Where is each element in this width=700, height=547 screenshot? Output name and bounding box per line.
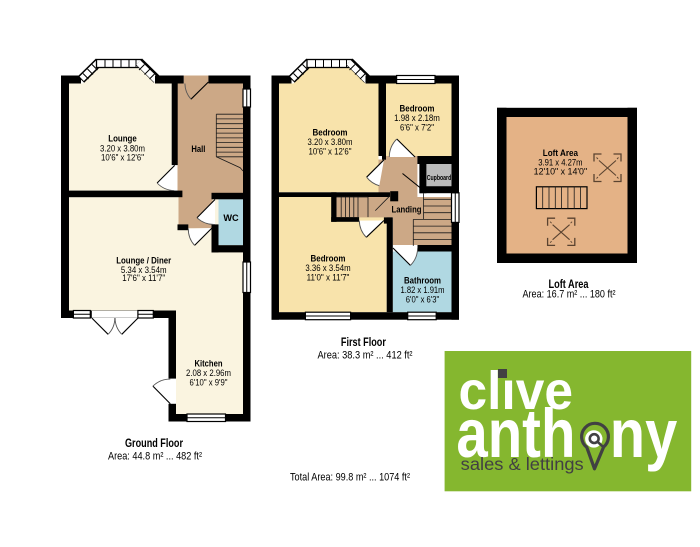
svg-text:6'6" x 7'2": 6'6" x 7'2" — [400, 122, 434, 132]
svg-text:Total Area: 99.8 m² ... 1074 f: Total Area: 99.8 m² ... 1074 ft² — [290, 472, 410, 484]
svg-text:First Floor: First Floor — [341, 335, 386, 349]
svg-text:6'0" x 6'3": 6'0" x 6'3" — [406, 295, 440, 305]
svg-text:sales & lettings: sales & lettings — [461, 454, 584, 474]
svg-text:2.08 x 2.96m: 2.08 x 2.96m — [186, 368, 231, 378]
svg-text:3.20 x 3.80m: 3.20 x 3.80m — [308, 137, 353, 147]
svg-text:11'0" x 11'7": 11'0" x 11'7" — [307, 273, 350, 283]
svg-text:1.82 x 1.91m: 1.82 x 1.91m — [401, 285, 445, 295]
svg-text:Area: 38.3 m² ... 412 ft²: Area: 38.3 m² ... 412 ft² — [318, 350, 413, 362]
svg-text:1.98 x 2.18m: 1.98 x 2.18m — [394, 113, 440, 123]
svg-text:Ground Floor: Ground Floor — [125, 436, 183, 450]
svg-text:3.36 x 3.54m: 3.36 x 3.54m — [305, 263, 350, 273]
svg-text:Cupboard: Cupboard — [427, 175, 452, 182]
svg-text:Area: 16.7 m² ... 180 ft²: Area: 16.7 m² ... 180 ft² — [523, 289, 616, 301]
svg-text:ny: ny — [610, 395, 678, 472]
svg-text:Area: 44.8 m² ... 482 ft²: Area: 44.8 m² ... 482 ft² — [108, 451, 202, 463]
svg-text:10'6" x 12'6": 10'6" x 12'6" — [101, 153, 144, 163]
svg-text:6'10" x 9'9": 6'10" x 9'9" — [190, 378, 228, 388]
svg-text:10'6" x 12'6": 10'6" x 12'6" — [309, 147, 352, 157]
svg-text:17'6" x 11'7": 17'6" x 11'7" — [122, 273, 165, 283]
svg-text:Landing: Landing — [392, 205, 422, 216]
svg-text:WC: WC — [223, 213, 238, 224]
svg-text:Hall: Hall — [191, 144, 205, 155]
svg-text:12'10" x 14'0": 12'10" x 14'0" — [534, 166, 588, 176]
